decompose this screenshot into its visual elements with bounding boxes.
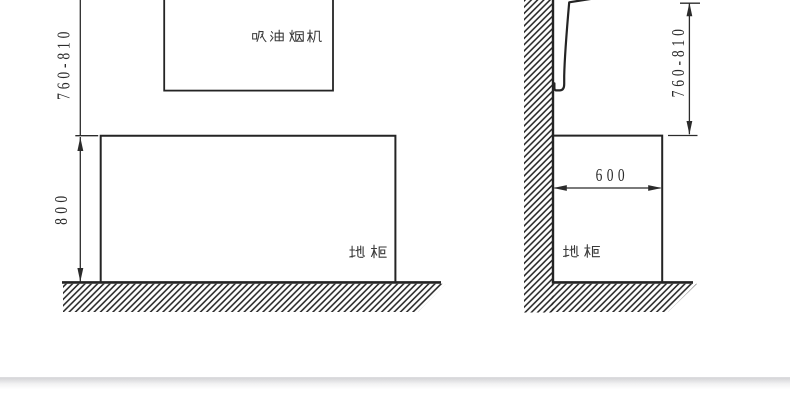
svg-text:600: 600	[596, 166, 629, 185]
svg-text:760-810: 760-810	[669, 25, 688, 97]
svg-text:800: 800	[52, 192, 71, 225]
svg-text:760-810: 760-810	[55, 28, 74, 100]
